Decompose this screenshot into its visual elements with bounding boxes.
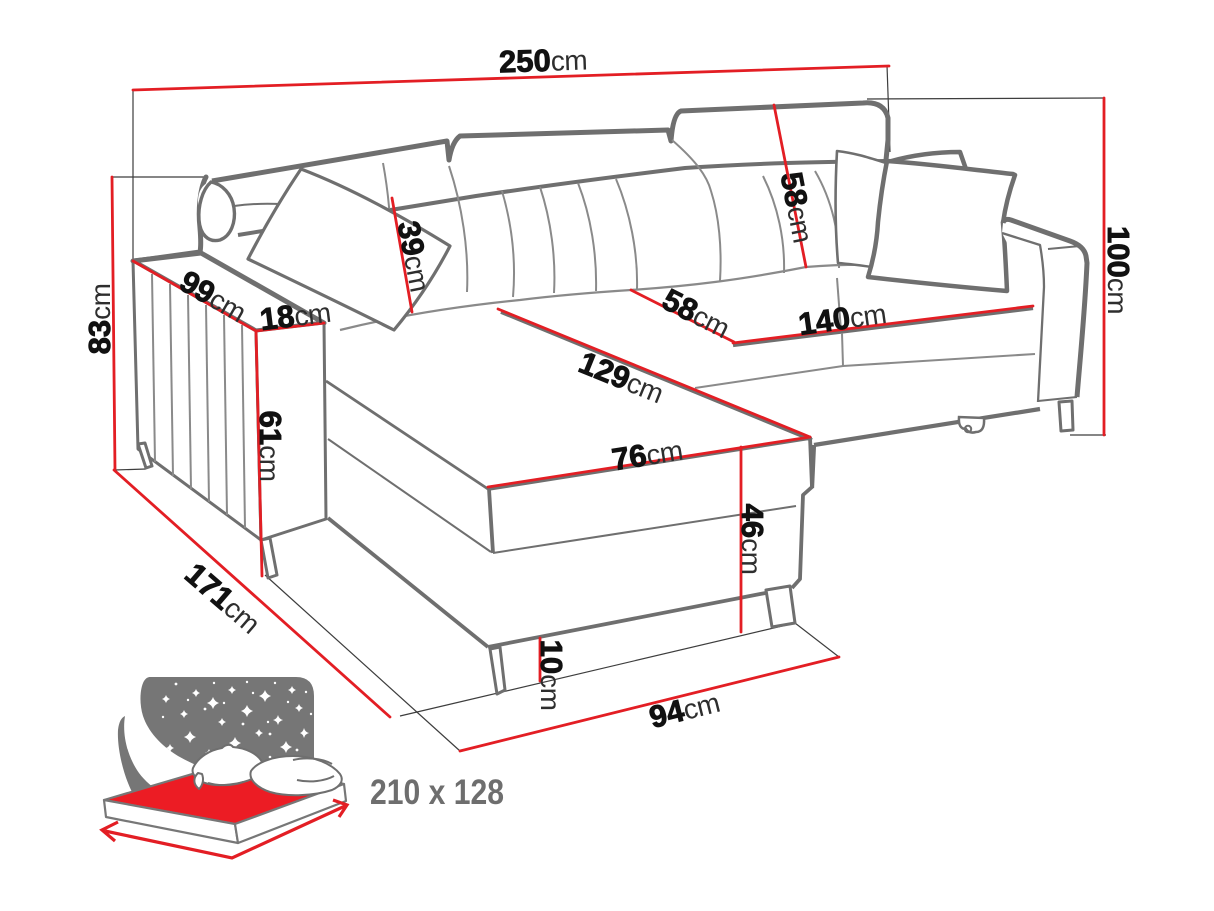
- svg-text:210 x 128: 210 x 128: [370, 773, 504, 812]
- svg-text:46cm: 46cm: [735, 504, 770, 575]
- svg-text:250cm: 250cm: [498, 41, 587, 79]
- svg-text:61cm: 61cm: [253, 411, 288, 482]
- svg-text:100cm: 100cm: [1101, 226, 1136, 314]
- svg-text:83cm: 83cm: [82, 284, 117, 355]
- svg-text:10cm: 10cm: [534, 640, 569, 711]
